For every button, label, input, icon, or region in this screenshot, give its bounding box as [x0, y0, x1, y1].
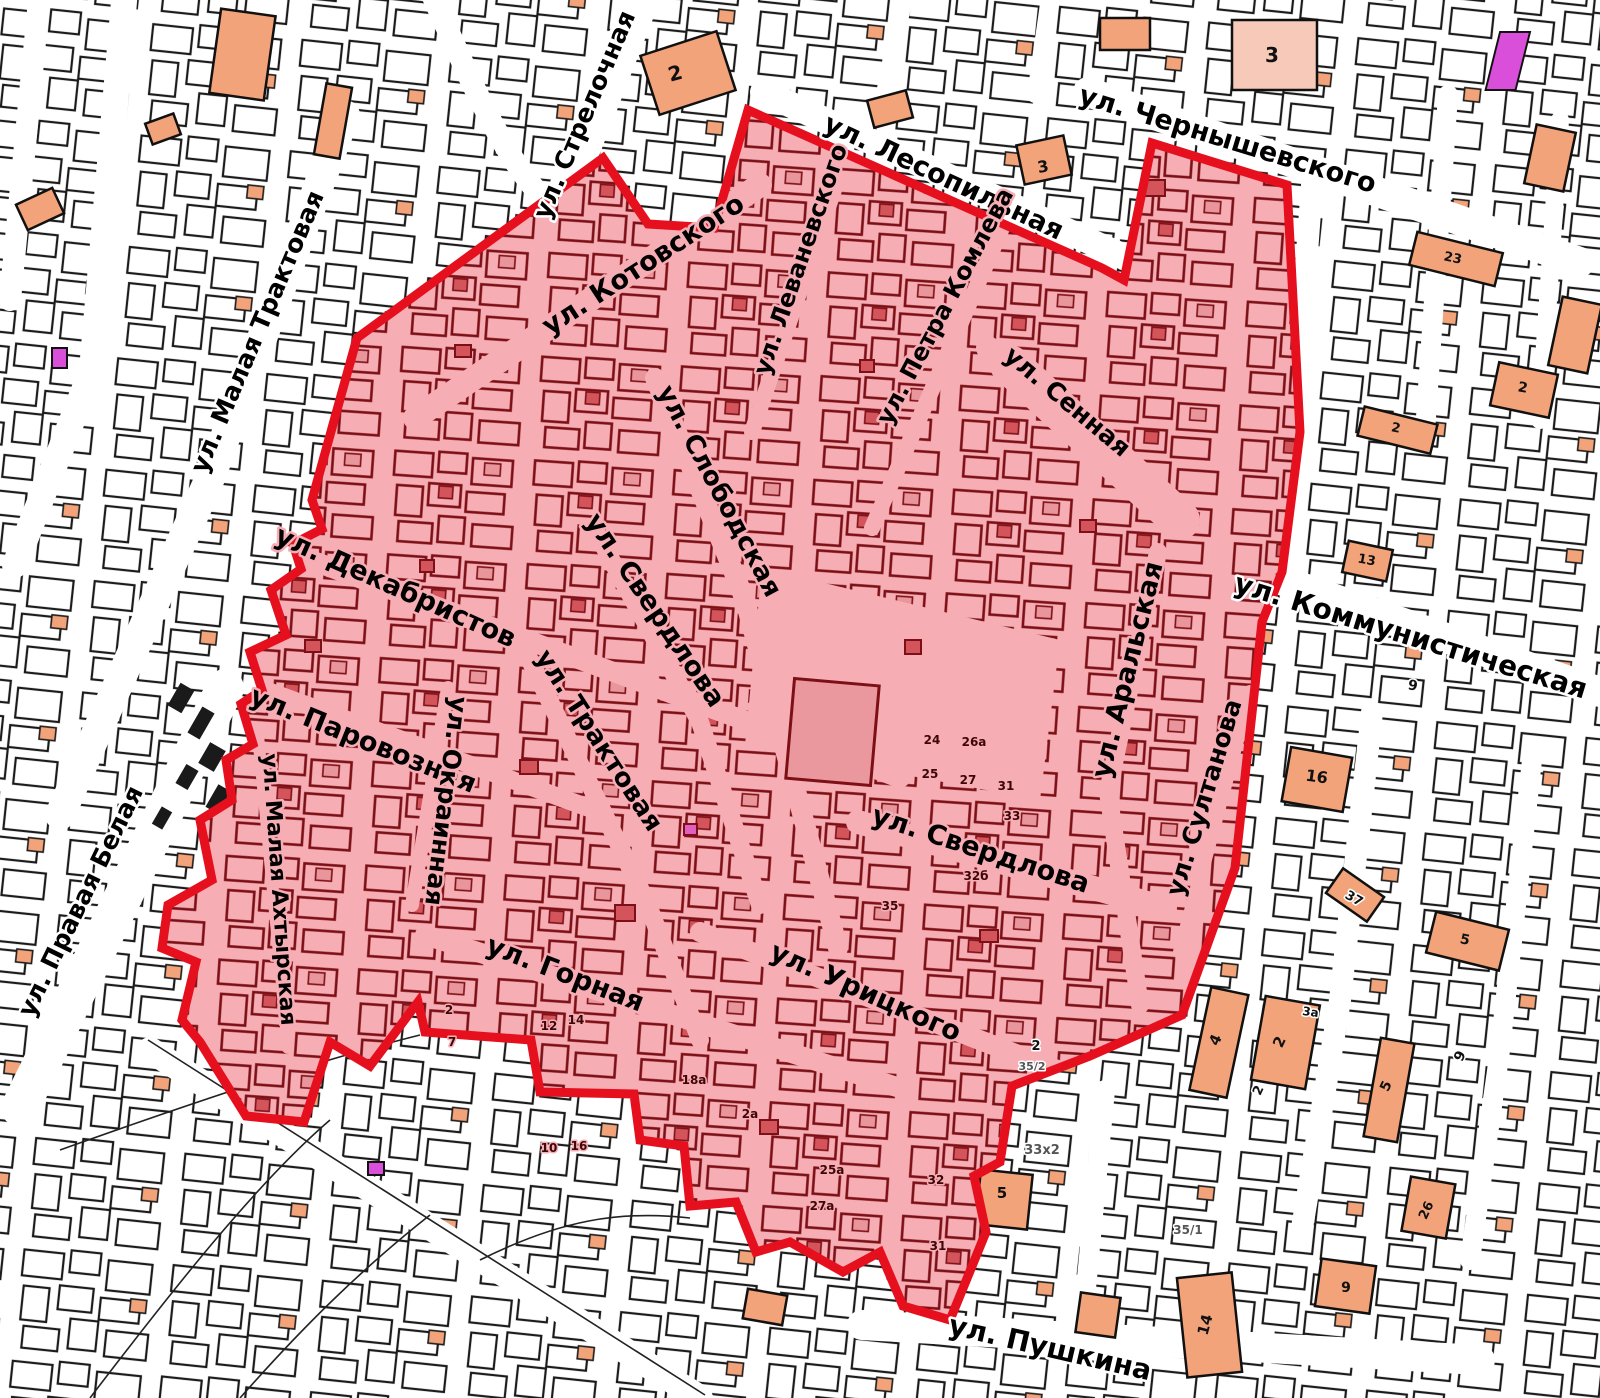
- building-number-34: 16: [571, 1139, 588, 1153]
- building-number-21: 9: [1341, 1280, 1351, 1296]
- cadastral-map-stage: ул. Стрелочнаяул. Лесопильнаяул. Черныше…: [0, 0, 1600, 1398]
- building-number-18: 5: [997, 1184, 1007, 1202]
- building-number-43: 35/1: [1173, 1223, 1202, 1237]
- building-number-41: 2а: [742, 1107, 758, 1121]
- building-number-19: 2: [1031, 1039, 1040, 1054]
- building-number-29: 2: [445, 1003, 453, 1017]
- building-number-2: 3: [1265, 43, 1279, 67]
- building-number-38: 32: [928, 1173, 945, 1187]
- building-number-28: 35: [882, 899, 899, 913]
- central-large-building: [786, 679, 879, 786]
- building-number-39: 31: [930, 1239, 947, 1253]
- building-number-31: 12: [541, 1019, 558, 1033]
- building-number-6: 13: [1356, 552, 1376, 570]
- building-number-36: 25а: [820, 1163, 845, 1177]
- building-number-27: 32б: [963, 869, 988, 883]
- building-number-35: 18а: [682, 1073, 707, 1087]
- building-number-42: 33х2: [1024, 1143, 1060, 1158]
- building-number-24: 25: [922, 767, 939, 781]
- building-number-8: 16: [1304, 766, 1329, 788]
- building-number-32: 14: [568, 1013, 585, 1027]
- building-number-23: 26а: [962, 735, 987, 749]
- building-number-26: 31: [998, 779, 1015, 793]
- building-number-44: 35/2: [1019, 1060, 1046, 1073]
- building-number-33: 10: [541, 1141, 558, 1155]
- cadastral-map: ул. Стрелочнаяул. Лесопильнаяул. Черныше…: [0, 0, 1600, 1398]
- building-number-14: 3а: [1301, 1004, 1319, 1020]
- building-number-22: 24: [924, 733, 941, 747]
- building-number-37: 27а: [810, 1199, 835, 1213]
- building-number-30: 7: [448, 1035, 456, 1049]
- building-number-25: 27: [960, 773, 977, 787]
- building-number-40: 33: [1004, 809, 1021, 823]
